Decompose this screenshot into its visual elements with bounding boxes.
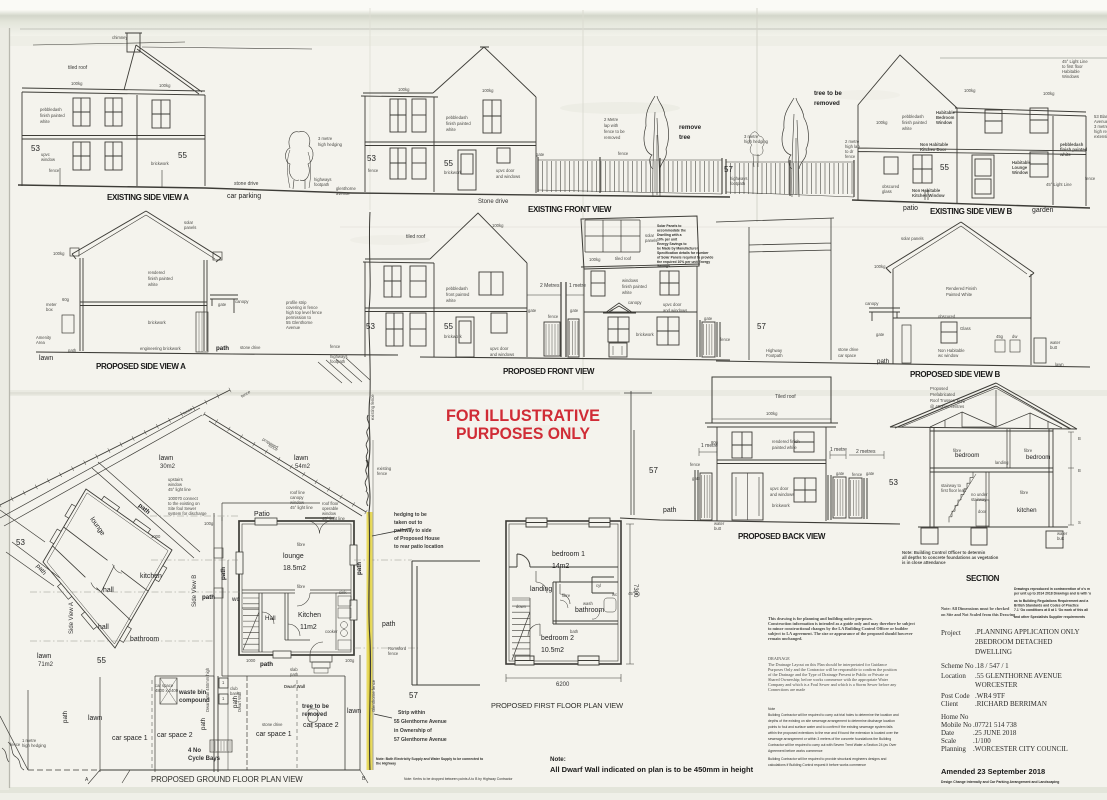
svg-text:18.5m2: 18.5m2 <box>283 565 306 572</box>
svg-text:PROPOSED BACK VIEW: PROPOSED BACK VIEW <box>738 532 826 541</box>
svg-text:system for discharge: system for discharge <box>168 511 207 516</box>
svg-text:Kitchen Door: Kitchen Door <box>920 147 947 152</box>
svg-text:bedroom: bedroom <box>1026 454 1050 461</box>
svg-text:.18 / 547 / 1: .18 / 547 / 1 <box>975 662 1009 670</box>
svg-text:removed: removed <box>604 135 621 140</box>
svg-text:gate: gate <box>218 302 227 307</box>
svg-text:fence: fence <box>720 337 731 342</box>
svg-text:finish painted: finish painted <box>622 284 647 289</box>
svg-text:Glass: Glass <box>960 326 971 331</box>
svg-text:.WORCESTER CITY COUNCIL: .WORCESTER CITY COUNCIL <box>973 745 1068 753</box>
svg-text:door: door <box>978 509 987 514</box>
svg-text:upvc door: upvc door <box>490 346 509 351</box>
svg-text:14m2: 14m2 <box>552 563 569 570</box>
svg-text:path: path <box>62 710 69 723</box>
svg-text:Note: Note <box>768 707 775 711</box>
svg-text:Solar Panels to: Solar Panels to <box>657 224 682 228</box>
svg-text:53: 53 <box>366 322 375 331</box>
svg-text:tiled roof: tiled roof <box>615 256 632 261</box>
svg-text:existing fence: existing fence <box>370 394 375 420</box>
svg-text:tree to be: tree to be <box>814 90 842 97</box>
svg-text:accommodate the: accommodate the <box>657 229 686 233</box>
svg-text:gate: gate <box>876 332 885 337</box>
svg-text:lounge: lounge <box>283 553 304 560</box>
svg-text:pebbledash: pebbledash <box>902 114 924 119</box>
svg-text:PROPOSED FRONT VIEW: PROPOSED FRONT VIEW <box>503 367 595 376</box>
svg-text:Dwarf Wall: Dwarf Wall <box>284 684 305 689</box>
svg-text:Area: Area <box>36 340 46 345</box>
svg-text:Scheme No: Scheme No <box>941 662 974 670</box>
svg-text:tiled roof: tiled roof <box>68 65 88 71</box>
svg-text:car parking: car parking <box>227 193 261 200</box>
svg-text:lawn: lawn <box>294 455 308 462</box>
svg-text:bath: bath <box>570 629 579 634</box>
svg-text:white: white <box>446 298 456 303</box>
svg-text:car space 2: car space 2 <box>157 732 193 739</box>
svg-text:Roof Trusses: Roof Trusses <box>930 398 955 403</box>
svg-text:upvc door: upvc door <box>496 168 515 173</box>
svg-text:.WR4 9TF: .WR4 9TF <box>975 692 1005 700</box>
svg-text:EXISTING SIDE VIEW A: EXISTING SIDE VIEW A <box>107 193 189 202</box>
svg-text:.25 JUNE 2018: .25 JUNE 2018 <box>973 729 1017 737</box>
svg-text:fence to be: fence to be <box>604 129 625 134</box>
svg-text:DRAINAGE: DRAINAGE <box>768 656 790 661</box>
svg-text:4800 x 2400: 4800 x 2400 <box>155 688 179 693</box>
svg-text:1000: 1000 <box>246 658 256 663</box>
svg-text:PROPOSED SIDE VIEW B: PROPOSED SIDE VIEW B <box>910 370 1000 379</box>
svg-text:on Site and Not Scaled from th: on Site and Not Scaled from this Drawing <box>941 612 1016 617</box>
svg-text:fibre: fibre <box>1024 448 1033 453</box>
svg-text:panels: panels <box>184 225 196 230</box>
svg-text:hall: hall <box>98 624 109 631</box>
svg-text:British Standards and Codes of: British Standards and Codes of Practice <box>1014 604 1079 608</box>
svg-text:Dwelling with a: Dwelling with a <box>657 233 682 237</box>
svg-text:57: 57 <box>724 165 733 174</box>
svg-text:Client: Client <box>941 700 958 708</box>
svg-text:high hedging: high hedging <box>22 743 47 748</box>
svg-text:53: 53 <box>16 538 25 547</box>
svg-text:fence: fence <box>852 472 863 477</box>
svg-text:remain unchanged.: remain unchanged. <box>768 636 802 641</box>
svg-text:Note: Both Electricity Supply: Note: Both Electricity Supply and Water … <box>376 757 483 761</box>
svg-text:path: path <box>877 358 890 365</box>
svg-text:upvc door: upvc door <box>770 486 789 491</box>
svg-text:to rear patio location: to rear patio location <box>394 544 443 550</box>
svg-text:of Proposed House: of Proposed House <box>394 536 440 542</box>
svg-text:taken out to: taken out to <box>394 520 422 526</box>
svg-text:fibre: fibre <box>953 448 962 453</box>
svg-text:brickwork: brickwork <box>772 503 791 508</box>
svg-text:white: white <box>446 127 456 132</box>
svg-text:and other Specialists Supplier: and other Specialists Supplier requireme… <box>1014 615 1085 619</box>
svg-text:Post Code: Post Code <box>941 692 970 700</box>
svg-text:front painted: front painted <box>446 292 470 297</box>
svg-text:calculations if Building Contr: calculations if Building Control request… <box>768 763 866 767</box>
svg-text:55 Glenthorne Avenue: 55 Glenthorne Avenue <box>394 719 447 725</box>
svg-text:fence: fence <box>49 168 60 173</box>
svg-text:gate: gate <box>528 308 537 313</box>
svg-text:.1/100: .1/100 <box>973 737 991 745</box>
svg-text:100g: 100g <box>345 658 355 663</box>
svg-text:fibre: fibre <box>562 593 571 598</box>
svg-text:lawn: lawn <box>39 355 53 362</box>
svg-text:bathroom: bathroom <box>575 607 604 614</box>
svg-text:windows: windows <box>622 278 638 283</box>
svg-text:tree: tree <box>679 134 691 141</box>
svg-text:55: 55 <box>97 656 106 665</box>
svg-text:down: down <box>516 604 527 609</box>
svg-text:wc: wc <box>612 592 617 597</box>
svg-text:path: path <box>356 562 363 575</box>
svg-text:butt: butt <box>1057 536 1065 541</box>
svg-text:is in close attendance: is in close attendance <box>902 560 946 565</box>
svg-text:lawn: lawn <box>1055 362 1064 367</box>
svg-text:brickwork: brickwork <box>151 161 170 166</box>
svg-text:pebbledash: pebbledash <box>40 107 62 112</box>
svg-text:finish painted: finish painted <box>40 113 65 118</box>
svg-text:pathway to side: pathway to side <box>394 528 432 534</box>
svg-text:cooker: cooker <box>325 629 338 634</box>
svg-text:53: 53 <box>889 478 898 487</box>
svg-text:finish painted: finish painted <box>446 121 471 126</box>
svg-text:1 metre: 1 metre <box>830 447 847 453</box>
svg-text:rendered finish: rendered finish <box>772 439 800 444</box>
svg-text:@ 400mm centres: @ 400mm centres <box>930 404 964 409</box>
svg-text:Cycle Bays: Cycle Bays <box>188 756 221 762</box>
svg-text:be Made by Manufacturer: be Made by Manufacturer <box>657 247 699 251</box>
svg-text:lap with: lap with <box>604 123 619 128</box>
svg-text:Note: Kerbs to be dropped betw: Note: Kerbs to be dropped between points… <box>404 777 513 781</box>
svg-text:100g: 100g <box>204 521 214 526</box>
svg-text:80g: 80g <box>711 440 719 445</box>
svg-text:Window: Window <box>1012 170 1029 175</box>
svg-text:57: 57 <box>757 322 766 331</box>
svg-text:tree to be: tree to be <box>302 704 330 710</box>
svg-text:wc: wc <box>231 596 240 603</box>
svg-text:canopy: canopy <box>628 300 642 305</box>
svg-text:10% per unit: 10% per unit <box>657 238 678 242</box>
svg-text:fence: fence <box>845 154 856 159</box>
svg-text:Drawings reproduced in contrav: Drawings reproduced in contravention of … <box>1014 587 1090 591</box>
svg-text:Connections are made: Connections are made <box>768 687 805 692</box>
svg-text:kitchen: kitchen <box>140 573 162 580</box>
svg-text:lawn: lawn <box>37 653 51 660</box>
svg-text:Specification details for numb: Specification details for number <box>657 251 709 255</box>
svg-text:45° Light Line: 45° Light Line <box>1046 182 1072 187</box>
svg-text:Scale: Scale <box>941 737 956 745</box>
svg-text:wc window: wc window <box>938 353 959 358</box>
svg-text:EXISTING SIDE VIEW B: EXISTING SIDE VIEW B <box>930 207 1012 216</box>
svg-text:Kitchen Window: Kitchen Window <box>912 193 945 198</box>
svg-text:55: 55 <box>178 151 187 160</box>
svg-text:fibre: fibre <box>957 399 966 404</box>
svg-text:lawn: lawn <box>159 455 173 462</box>
svg-text:path: path <box>200 717 207 730</box>
svg-text:S: S <box>1078 520 1081 525</box>
svg-text:rendered: rendered <box>148 270 165 275</box>
svg-text:45° light line: 45° light line <box>168 487 192 492</box>
svg-text:canopy: canopy <box>865 301 879 306</box>
svg-text:30m2: 30m2 <box>160 464 176 470</box>
svg-text:brickwork: brickwork <box>444 170 463 175</box>
svg-text:gate: gate <box>704 316 713 321</box>
svg-text:4 No: 4 No <box>188 748 201 754</box>
svg-text:Painted White: Painted White <box>946 292 973 297</box>
svg-text:Tiled roof: Tiled roof <box>775 394 796 400</box>
svg-text:brickwork: brickwork <box>636 332 655 337</box>
svg-text:PROPOSED SIDE VIEW A: PROPOSED SIDE VIEW A <box>96 362 186 371</box>
svg-text:fence: fence <box>548 314 559 319</box>
svg-text:fence: fence <box>388 651 399 656</box>
svg-text:fence: fence <box>330 344 341 349</box>
svg-text:path: path <box>202 594 215 601</box>
svg-text:butt: butt <box>714 526 722 531</box>
svg-text:EXISTING FRONT VIEW: EXISTING FRONT VIEW <box>528 205 612 214</box>
svg-text:removed: removed <box>814 100 840 107</box>
svg-text:Date: Date <box>941 729 954 737</box>
svg-text:Avenue: Avenue <box>286 325 301 330</box>
svg-text:landing: landing <box>995 460 1009 465</box>
svg-text:bathroom: bathroom <box>130 636 159 643</box>
svg-text:stone drive: stone drive <box>240 345 261 350</box>
svg-text:footpath: footpath <box>730 181 746 186</box>
svg-text:Windows: Windows <box>1062 74 1079 79</box>
svg-text:window: window <box>41 157 56 162</box>
svg-text:gate: gate <box>692 476 701 481</box>
svg-text:100kg: 100kg <box>53 251 65 256</box>
svg-text:Contractor will be required to: Contractor will be required to carry out… <box>768 743 897 747</box>
svg-text:removed: removed <box>302 712 327 718</box>
svg-text:45g: 45g <box>996 334 1004 339</box>
svg-text:Project: Project <box>941 629 961 637</box>
svg-text:upvc door: upvc door <box>663 302 682 307</box>
svg-text:path: path <box>290 672 299 677</box>
svg-text:Kitchen: Kitchen <box>298 612 321 619</box>
svg-text:Building Contractor will be re: Building Contractor will be required to … <box>768 757 886 761</box>
svg-text:100kg: 100kg <box>482 88 494 93</box>
svg-text:Hall: Hall <box>265 615 276 622</box>
svg-text:Rendered Finish: Rendered Finish <box>946 286 977 291</box>
svg-text:Energy Savings to: Energy Savings to <box>657 242 687 246</box>
svg-text:55: 55 <box>444 159 453 168</box>
svg-text:100kg: 100kg <box>1043 91 1055 96</box>
svg-text:pebbledash: pebbledash <box>446 115 468 120</box>
svg-text:2 Metres: 2 Metres <box>540 283 560 289</box>
svg-text:of Solar Panels required to pr: of Solar Panels required to provide <box>657 256 713 260</box>
svg-text:Patio: Patio <box>254 511 270 518</box>
svg-text:45° light line: 45° light line <box>290 505 314 510</box>
svg-text:PURPOSES ONLY: PURPOSES ONLY <box>456 425 590 443</box>
svg-text:car space: car space <box>838 353 857 358</box>
svg-text:stone drive: stone drive <box>838 347 859 352</box>
svg-text:bedroom 1: bedroom 1 <box>552 551 585 558</box>
svg-text:Location: Location <box>941 672 966 680</box>
svg-text:stone drive: stone drive <box>234 181 259 187</box>
svg-text:60g: 60g <box>62 297 70 302</box>
svg-text:10.5m2: 10.5m2 <box>541 647 564 654</box>
svg-text:2BEDROOM DETACHED: 2BEDROOM DETACHED <box>975 638 1052 646</box>
svg-text:Mobile No: Mobile No <box>941 721 972 729</box>
svg-text:.07721 514 738: .07721 514 738 <box>973 721 1017 729</box>
svg-text:57: 57 <box>409 691 418 700</box>
svg-text:finish painted: finish painted <box>148 276 173 281</box>
svg-text:butt: butt <box>1050 345 1058 350</box>
svg-text:the Highway: the Highway <box>376 762 396 766</box>
svg-text:path: path <box>220 567 227 580</box>
svg-text:PROPOSED GROUND FLOOR PLAN VIE: PROPOSED GROUND FLOOR PLAN VIEW <box>151 775 303 784</box>
svg-text:wash: wash <box>583 601 593 606</box>
svg-text:and windows: and windows <box>770 492 794 497</box>
svg-text:bank: bank <box>230 691 240 696</box>
svg-text:garden: garden <box>1032 207 1054 214</box>
svg-text:brickwork: brickwork <box>148 320 167 325</box>
svg-text:FOR ILLUSTRATIVE: FOR ILLUSTRATIVE <box>446 407 600 425</box>
svg-text:2 Metre: 2 Metre <box>604 117 619 122</box>
svg-text:Footpath: Footpath <box>766 353 783 358</box>
svg-text:100kg: 100kg <box>876 120 888 125</box>
svg-text:Note: All Dimensions must be c: Note: All Dimensions must be checked <box>941 606 1010 611</box>
svg-text:path: path <box>260 661 273 668</box>
svg-text:finish painted: finish painted <box>902 120 927 125</box>
svg-text:stairway: stairway <box>971 497 987 502</box>
svg-text:path: path <box>663 507 677 514</box>
svg-text:depths of the existing on site: depths of the existing on site sewerage … <box>768 719 895 723</box>
svg-text:lawn: lawn <box>347 708 361 715</box>
svg-text:Building Contractor will be re: Building Contractor will be required to … <box>768 713 899 717</box>
svg-text:57: 57 <box>649 466 658 475</box>
svg-text:Amended 23 September 2018: Amended 23 September 2018 <box>941 767 1045 776</box>
svg-text:white: white <box>1059 152 1071 157</box>
svg-text:Stone drive: Stone drive <box>478 199 509 205</box>
svg-text:1 metre: 1 metre <box>569 283 586 289</box>
svg-text:11m2: 11m2 <box>300 624 317 631</box>
svg-text:as to Building Regulations Req: as to Building Regulations Requirement a… <box>1014 599 1088 603</box>
svg-text:and windows: and windows <box>496 174 520 179</box>
svg-text:2 metres: 2 metres <box>856 449 876 455</box>
svg-text:pebbledash: pebbledash <box>446 286 468 291</box>
svg-text:100kg: 100kg <box>159 83 171 88</box>
svg-text:car space 2: car space 2 <box>303 722 339 729</box>
svg-text:tiled roof: tiled roof <box>406 234 426 240</box>
svg-text:B: B <box>1078 436 1081 441</box>
svg-text:gate: gate <box>836 471 845 476</box>
svg-text:fence: fence <box>1085 176 1096 181</box>
svg-text:7.1 'Oo conditions at 8 at 1 ': 7.1 'Oo conditions at 8 at 1 'Oo work of… <box>1014 608 1088 612</box>
svg-text:fence: fence <box>690 462 701 467</box>
svg-text:100kg: 100kg <box>589 257 601 262</box>
svg-text:.55 GLENTHORNE AVENUE: .55 GLENTHORNE AVENUE <box>975 672 1062 680</box>
svg-text:bedroom: bedroom <box>955 452 979 459</box>
svg-text:3 metre: 3 metre <box>318 136 333 141</box>
svg-text:canopy: canopy <box>235 299 249 304</box>
svg-text:remove: remove <box>679 124 702 131</box>
svg-text:.RICHARD BERRIMAN: .RICHARD BERRIMAN <box>975 700 1047 708</box>
svg-text:lawn: lawn <box>88 715 102 722</box>
svg-text:7300: 7300 <box>632 584 638 598</box>
svg-text:waste bin: waste bin <box>178 690 207 696</box>
svg-text:6200: 6200 <box>556 682 570 688</box>
svg-text:footpath: footpath <box>330 359 346 364</box>
svg-text:B: B <box>1078 468 1081 473</box>
svg-text:100kg: 100kg <box>766 411 778 416</box>
svg-text:glass: glass <box>882 189 892 194</box>
svg-text:path: path <box>382 621 396 628</box>
svg-text:car space 1: car space 1 <box>112 735 148 742</box>
svg-text:avenue: avenue <box>336 191 350 196</box>
svg-text:cyl: cyl <box>596 583 601 588</box>
svg-text:per unit up to 2014 2018 Drawi: per unit up to 2014 2018 Drawings and is… <box>1014 592 1091 596</box>
svg-text:SECTION: SECTION <box>966 574 1000 583</box>
svg-text:55: 55 <box>940 163 949 172</box>
svg-text:gate: gate <box>536 152 545 157</box>
svg-text:54m2: 54m2 <box>295 464 311 470</box>
svg-text:53: 53 <box>367 154 376 163</box>
svg-text:fibre: fibre <box>297 542 306 547</box>
svg-text:box: box <box>46 307 54 312</box>
svg-text:71m2: 71m2 <box>38 662 54 668</box>
svg-text:100kg: 100kg <box>398 87 410 92</box>
svg-text:fence: fence <box>618 151 629 156</box>
svg-text:Glenthorne fence: Glenthorne fence <box>371 679 376 712</box>
svg-text:Proposed: Proposed <box>930 386 949 391</box>
svg-text:Prefabricated: Prefabricated <box>930 392 956 397</box>
svg-text:Side View A: Side View A <box>69 602 75 634</box>
svg-text:chimney: chimney <box>112 35 128 40</box>
svg-text:bedroom 2: bedroom 2 <box>541 635 574 642</box>
svg-text:in Ownership of: in Ownership of <box>394 728 432 734</box>
svg-text:white: white <box>148 282 158 287</box>
svg-text:45° light line: 45° light line <box>322 516 346 521</box>
svg-text:high hedging: high hedging <box>744 139 769 144</box>
svg-text:car space 1: car space 1 <box>256 731 292 738</box>
svg-text:hedging to be: hedging to be <box>394 512 427 518</box>
svg-text:kitchen: kitchen <box>1017 507 1037 514</box>
svg-text:obscured: obscured <box>938 314 956 319</box>
svg-text:PROPOSED FIRST FLOOR PLAN VIEW: PROPOSED FIRST FLOOR PLAN VIEW <box>491 701 623 710</box>
svg-text:high hedging: high hedging <box>318 142 343 147</box>
svg-text:hall: hall <box>103 587 114 594</box>
svg-text:Agreement before works commenc: Agreement before works commence <box>768 749 823 753</box>
svg-text:100kg: 100kg <box>71 81 83 86</box>
svg-text:Planning: Planning <box>941 745 966 753</box>
svg-text:Side View B: Side View B <box>192 575 198 607</box>
svg-text:and windows: and windows <box>490 352 514 357</box>
svg-text:and windows: and windows <box>663 308 687 313</box>
svg-text:fence: fence <box>377 471 388 476</box>
svg-text:first floor lead: first floor lead <box>941 488 967 493</box>
svg-text:stone drive: stone drive <box>262 722 283 727</box>
svg-text:Home No: Home No <box>941 713 969 721</box>
svg-text:fibre: fibre <box>1020 490 1029 495</box>
svg-text:white: white <box>902 126 912 131</box>
svg-text:WORCESTER: WORCESTER <box>975 681 1018 689</box>
svg-text:panels: panels <box>645 238 657 243</box>
svg-text:within the proposed extentions: within the proposed extentions to the re… <box>768 731 899 735</box>
svg-text:white: white <box>40 119 50 124</box>
svg-text:fence: fence <box>368 168 379 173</box>
svg-text:engineering brickwork: engineering brickwork <box>140 346 182 351</box>
svg-text:100kg: 100kg <box>964 88 976 93</box>
svg-text:gate: gate <box>866 471 875 476</box>
svg-text:extension: extension <box>1094 134 1107 139</box>
svg-text:57 Glenthorne Avenue: 57 Glenthorne Avenue <box>394 737 447 743</box>
svg-text:Savings: Savings <box>657 264 670 268</box>
svg-text:55: 55 <box>444 322 453 331</box>
svg-text:white: white <box>622 290 632 295</box>
svg-text:sewerage arrangement or within: sewerage arrangement or within 3 meters … <box>768 737 891 741</box>
svg-text:100kg: 100kg <box>492 223 504 228</box>
svg-text:100kg: 100kg <box>874 264 886 269</box>
